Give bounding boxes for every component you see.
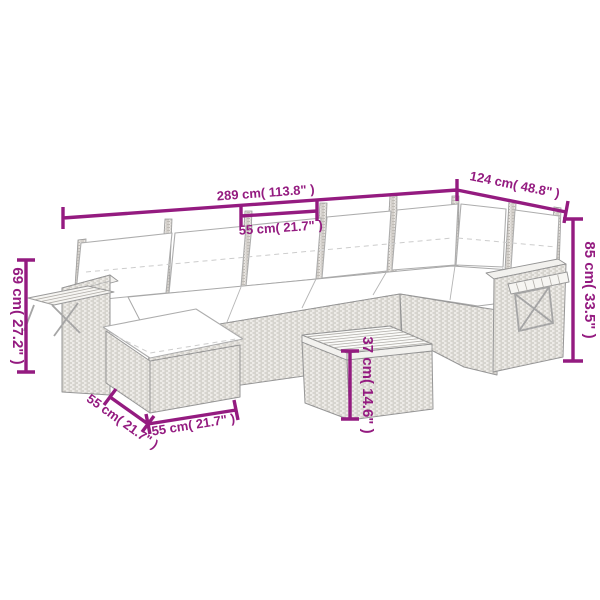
product-dimension-diagram: 289 cm( 113.8" ) 124 cm( 48.8" ) 55 cm( … [0,0,600,600]
dim-overall-height: 85 cm( 33.5" ) [563,219,598,361]
dim-overall-height-label: 85 cm( 33.5" ) [581,241,598,338]
dim-shelf-height-label: 69 cm( 27.2" ) [9,267,26,364]
diagram-canvas: 289 cm( 113.8" ) 124 cm( 48.8" ) 55 cm( … [0,0,600,600]
dim-shelf-height: 69 cm( 27.2" ) [9,260,35,372]
dim-ottoman-width-label: 55 cm( 21.7" ) [151,411,237,439]
dim-table-height-label: 37 cm( 14.6" ) [359,336,376,433]
